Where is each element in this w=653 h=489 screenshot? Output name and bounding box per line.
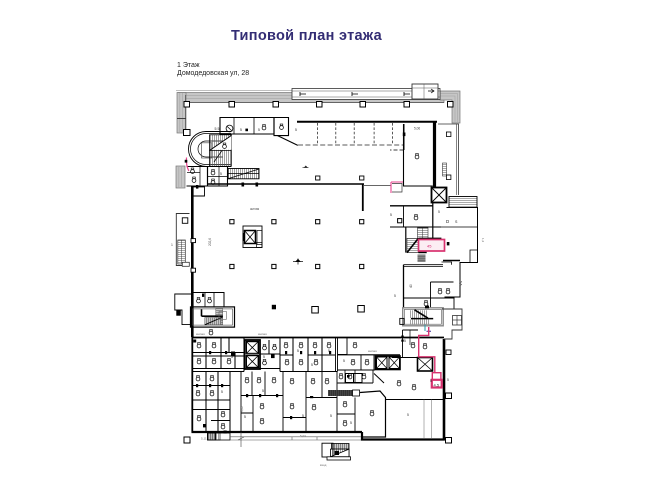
svg-text:5: 5 [297,349,299,353]
svg-text:5: 5 [244,415,246,419]
svg-text:5: 5 [430,379,432,383]
svg-text:5: 5 [262,389,264,393]
svg-text:1,2: 1,2 [481,238,485,243]
svg-text:5: 5 [302,414,304,418]
svg-text:1: 1 [171,243,173,247]
svg-text:жилая: жилая [368,349,377,353]
svg-text:5,06: 5,06 [414,127,420,131]
svg-text:5: 5 [220,172,222,176]
svg-text:45: 45 [427,244,432,249]
svg-text:5: 5 [330,414,332,418]
svg-text:жилая: жилая [258,332,267,336]
svg-text:5: 5 [221,390,223,394]
svg-text:202,6: 202,6 [208,238,212,246]
svg-text:жилая: жилая [196,332,205,336]
svg-text:5: 5 [407,413,409,417]
svg-text:5: 5 [343,359,345,363]
svg-text:5: 5 [394,294,396,298]
svg-text:4,5: 4,5 [434,383,440,388]
svg-text:5: 5 [311,363,313,367]
svg-text:5,11: 5,11 [201,437,207,441]
svg-text:5: 5 [390,213,392,217]
svg-text:вход: вход [320,463,327,467]
svg-text:5: 5 [258,128,260,132]
svg-text:5 5: 5 5 [215,127,220,131]
svg-text:5: 5 [263,355,265,359]
svg-text:40: 40 [409,284,413,288]
svg-text:S: S [455,220,458,224]
svg-text:5: 5 [438,210,440,214]
svg-text:D: D [446,219,450,224]
svg-text:жилая: жилая [250,207,260,211]
svg-text:5,02: 5,02 [240,406,244,412]
svg-text:5: 5 [404,339,406,343]
svg-text:5: 5 [240,128,242,132]
svg-text:5: 5 [447,378,449,382]
svg-text:5: 5 [350,421,352,425]
svg-text:5: 5 [295,128,297,132]
svg-text:5,6: 5,6 [459,281,463,286]
svg-text:5: 5 [328,349,330,353]
svg-text:5,03: 5,03 [300,434,306,438]
svg-text:5: 5 [231,355,233,359]
